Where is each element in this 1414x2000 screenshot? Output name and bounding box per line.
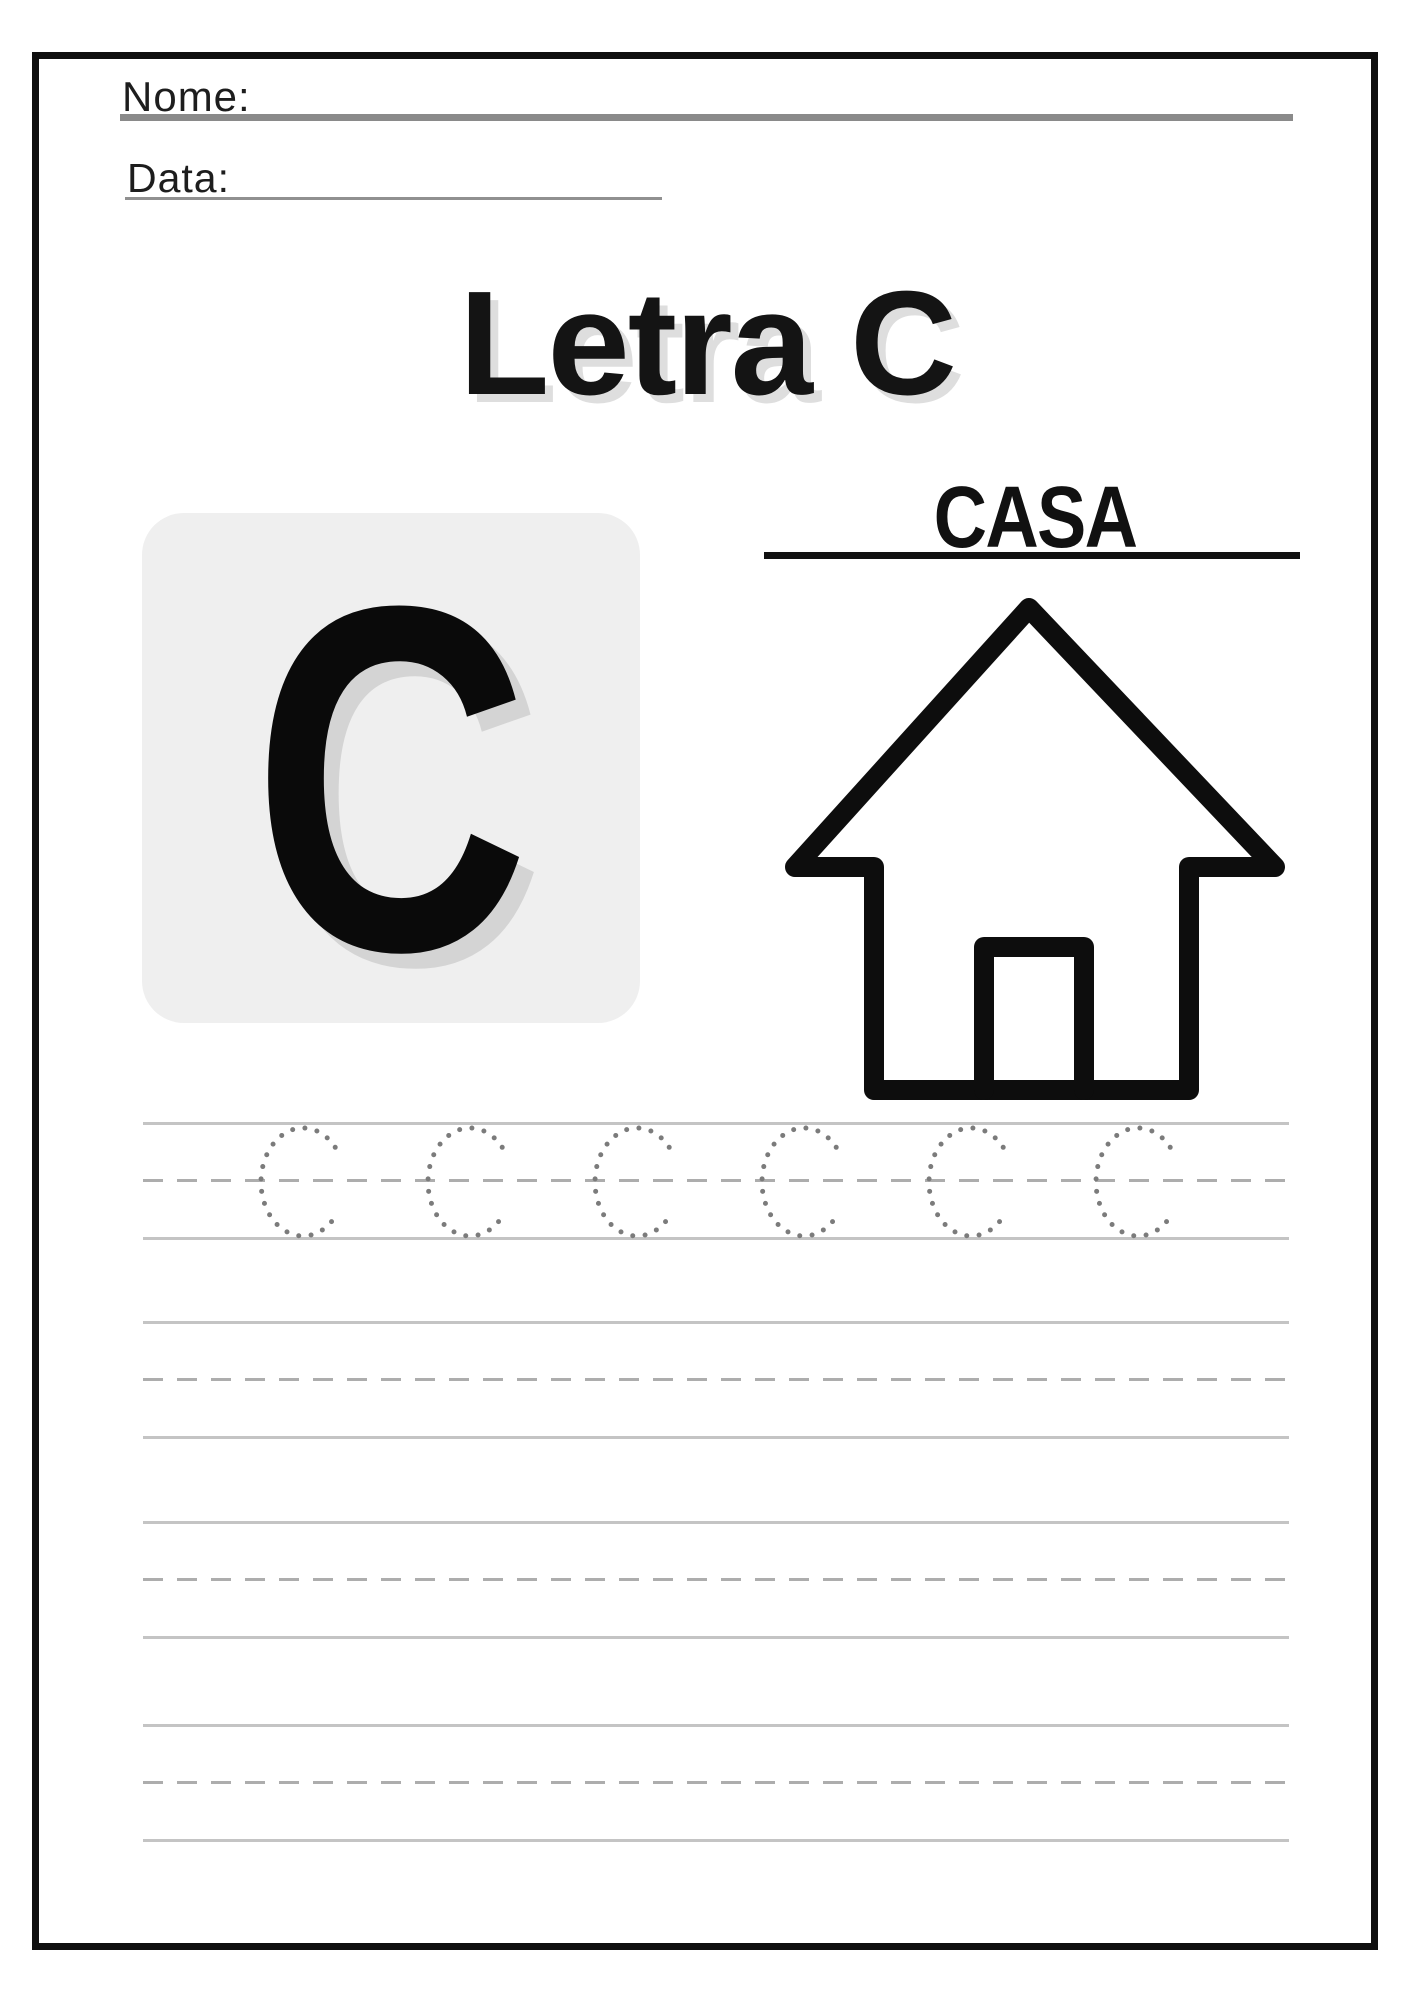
- word-label: CASA: [810, 474, 1261, 561]
- guide-line-solid: [143, 1321, 1289, 1324]
- trace-letter-c: [929, 1128, 1003, 1236]
- guide-line-dashed: [143, 1378, 1289, 1381]
- letter-card: C: [142, 513, 640, 1023]
- name-fill-line: [120, 114, 1293, 121]
- date-label: Data:: [127, 158, 230, 199]
- guide-line-solid: [143, 1636, 1289, 1639]
- guide-line-solid: [143, 1521, 1289, 1524]
- guide-line-solid: [143, 1724, 1289, 1727]
- tracing-row: [143, 1122, 1289, 1240]
- trace-letters-row: [0, 1110, 1414, 1270]
- house-outline: [795, 608, 1275, 1090]
- worksheet-page: Nome: Data: Letra C C CASA: [0, 0, 1414, 2000]
- trace-letter-c: [428, 1128, 502, 1236]
- writing-row: [143, 1521, 1289, 1639]
- word-underline: [764, 552, 1300, 559]
- guide-line-solid: [143, 1436, 1289, 1439]
- letter-c-display: C: [197, 534, 585, 1026]
- guide-line-dashed: [143, 1781, 1289, 1784]
- house-icon: [770, 588, 1290, 1110]
- trace-letter-c: [595, 1128, 669, 1236]
- guide-line-solid: [143, 1839, 1289, 1842]
- name-label: Nome:: [122, 76, 251, 118]
- trace-letter-c: [1096, 1128, 1170, 1236]
- house-door: [984, 947, 1084, 1090]
- writing-row: [143, 1321, 1289, 1439]
- page-title: Letra C: [0, 270, 1414, 418]
- guide-line-dashed: [143, 1578, 1289, 1581]
- trace-letter-c: [261, 1128, 335, 1236]
- date-fill-line: [125, 197, 662, 200]
- writing-row: [143, 1724, 1289, 1842]
- trace-letter-c: [762, 1128, 836, 1236]
